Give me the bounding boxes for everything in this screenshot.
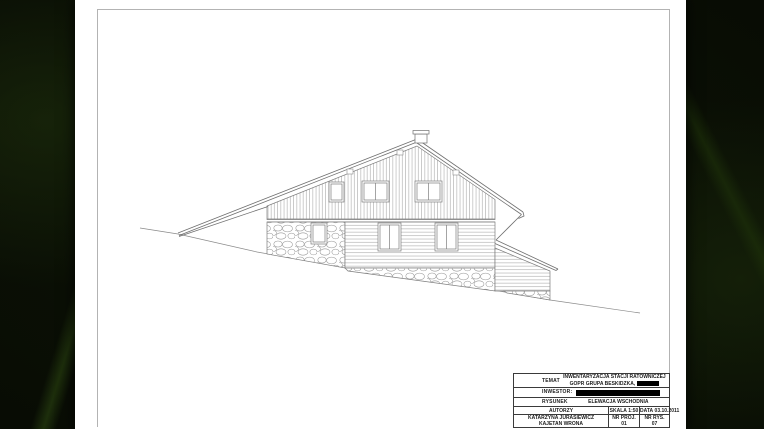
- lower-floor-siding-wall: [345, 222, 495, 268]
- skala-text: SKALA 1:50: [610, 408, 639, 414]
- nr-proj-value: 01: [621, 421, 627, 427]
- autorzy-label: AUTORZY: [514, 407, 609, 414]
- data-text: DATA 03.10.2011: [640, 408, 679, 414]
- skala-cell: SKALA 1:50: [609, 407, 640, 414]
- temat-value: INWENTARYZACJA STACJI RATOWNICZEJ GOPR G…: [560, 374, 669, 387]
- annex-stone-base: [504, 291, 550, 300]
- annex-siding-wall: [495, 248, 550, 291]
- title-block-row-authors: KATARZYNA JURASIEWICZ KAJETAN WRONA NR P…: [514, 415, 669, 427]
- nr-rys-value: 07: [652, 421, 658, 427]
- inwestor-label: INWESTOR:: [514, 389, 572, 395]
- east-elevation-drawing: [75, 0, 686, 429]
- nr-proj-cell: NR PROJ. 01: [609, 415, 640, 427]
- stone-masonry-wall: [267, 222, 345, 268]
- grass-photo-background: TEMAT INWENTARYZACJA STACJI RATOWNICZEJ …: [0, 0, 764, 429]
- title-block: TEMAT INWENTARYZACJA STACJI RATOWNICZEJ …: [513, 373, 670, 428]
- temat-label: TEMAT: [514, 378, 560, 384]
- data-cell: DATA 03.10.2011: [640, 407, 679, 414]
- rysunek-label: RYSUNEK: [514, 399, 568, 405]
- authors-names: KATARZYNA JURASIEWICZ KAJETAN WRONA: [514, 415, 609, 427]
- nr-rys-cell: NR RYS. 07: [640, 415, 669, 427]
- redaction-bar: [637, 381, 659, 386]
- title-block-row-temat: TEMAT INWENTARYZACJA STACJI RATOWNICZEJ …: [514, 374, 669, 388]
- temat-value-line2: GOPR GRUPA BESKIDZKA,: [560, 381, 669, 387]
- title-block-row-inwestor: INWESTOR:: [514, 388, 669, 398]
- author-2: KAJETAN WRONA: [539, 421, 583, 427]
- chimney: [413, 131, 429, 144]
- redaction-bar: [576, 390, 660, 396]
- foundation-stone-strip: [345, 268, 495, 291]
- rysunek-value: ELEWACJA WSCHODNIA: [568, 399, 669, 405]
- title-block-row-rysunek: RYSUNEK ELEWACJA WSCHODNIA: [514, 398, 669, 408]
- paper-sheet: TEMAT INWENTARYZACJA STACJI RATOWNICZEJ …: [75, 0, 686, 429]
